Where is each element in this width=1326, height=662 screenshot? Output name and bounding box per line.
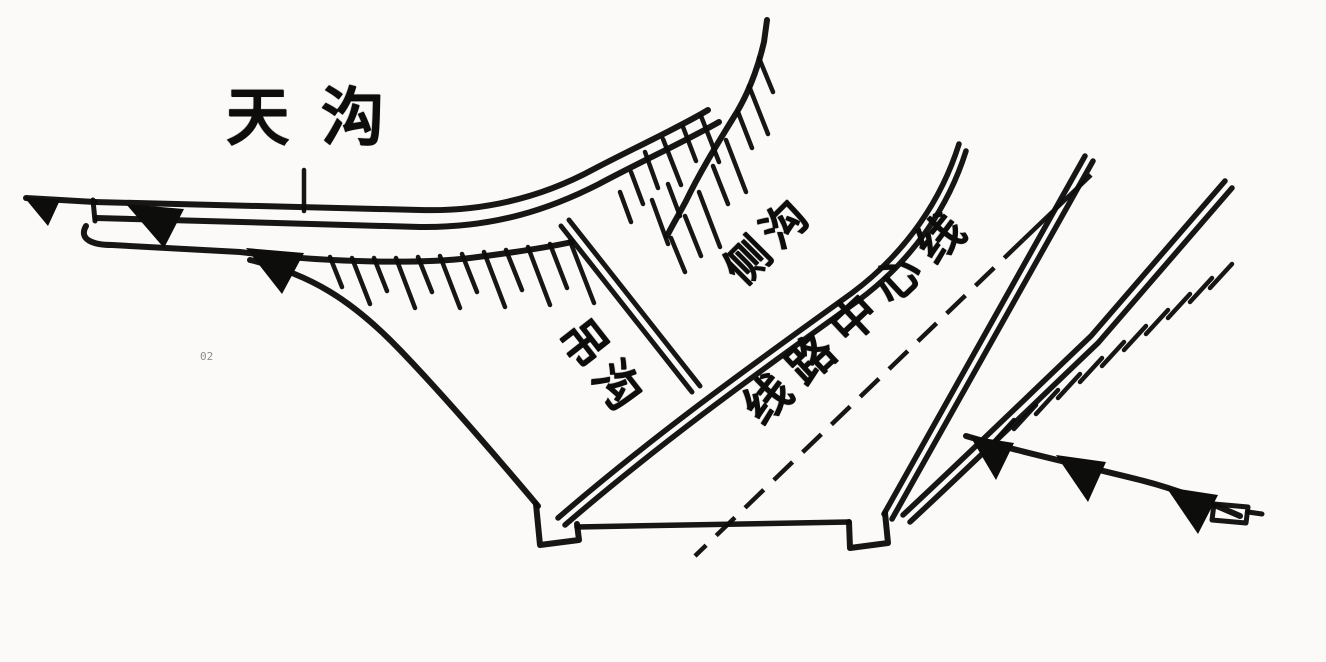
right-slope-hatching	[992, 264, 1232, 444]
ground-line-end-tail	[1248, 512, 1262, 514]
top-ditch-end-cap	[93, 200, 95, 221]
terrain-flag	[1166, 487, 1218, 534]
roadbed-line	[577, 522, 849, 527]
left-slope-hatching	[330, 241, 594, 308]
terrain-flag	[1056, 455, 1106, 502]
top-ditch-label: 天沟	[226, 86, 416, 149]
terrain-flag	[126, 204, 184, 248]
left-side-ditch-lines	[558, 144, 966, 525]
left-slope-edge-line	[250, 260, 538, 506]
terrain-flag	[246, 248, 304, 294]
scan-artifact-speck: 02	[200, 350, 213, 363]
diagram-linework	[0, 0, 1326, 662]
terrain-flags-left	[24, 197, 304, 294]
terrain-flag	[24, 197, 60, 226]
terrain-flags-right	[970, 436, 1218, 534]
cutting-drainage-figure: 天沟 吊沟 侧沟 线路中心线 02	[0, 0, 1326, 662]
left-ditch-notch	[536, 504, 579, 545]
roadbed-and-notches	[536, 504, 888, 548]
right-ditch-notch	[849, 513, 888, 548]
